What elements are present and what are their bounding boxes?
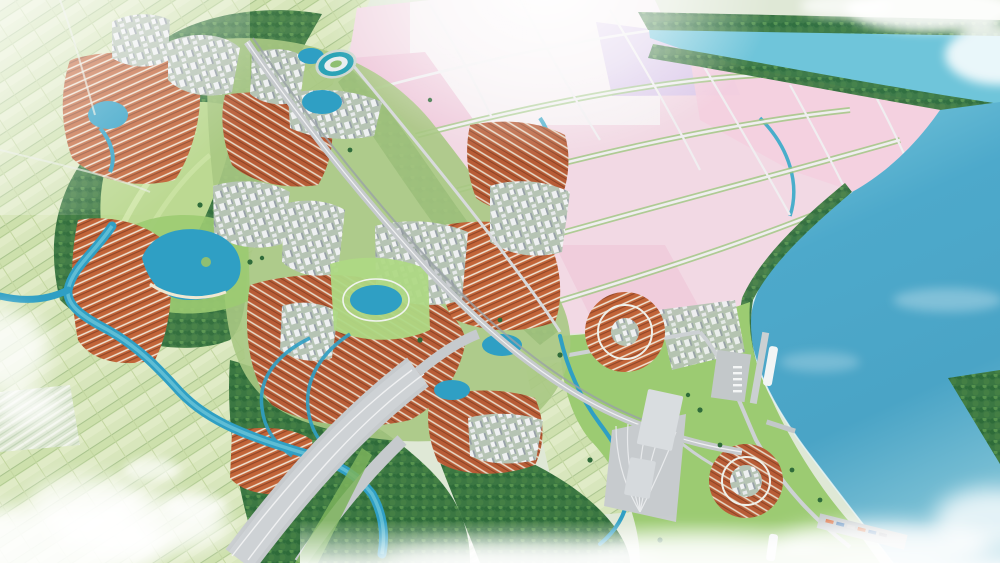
haze-top-left	[0, 0, 250, 215]
cloud-finger-2	[166, 494, 226, 518]
pond-south	[434, 380, 470, 400]
cloud-bottom-left-3	[30, 476, 150, 520]
park-pond	[350, 285, 402, 315]
cloud-bay-wisp-1	[893, 288, 1000, 312]
cloud-finger-1	[124, 458, 180, 482]
masterplan-render	[0, 0, 1000, 563]
haze-bottom	[300, 520, 1000, 563]
lake-stadium-2	[302, 90, 342, 114]
cloud-bay-wisp-2	[780, 352, 860, 372]
marina-quay	[711, 350, 751, 402]
kidney-lake-island	[201, 257, 211, 267]
